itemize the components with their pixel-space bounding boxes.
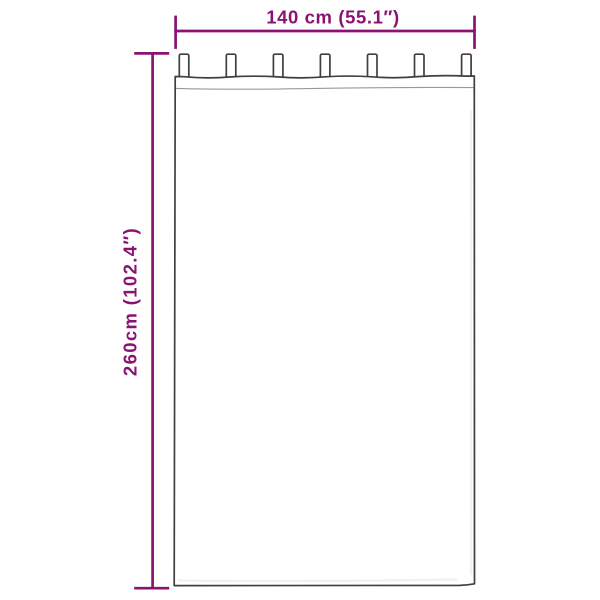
svg-text:140 cm (55.1″): 140 cm (55.1″) [266,7,399,28]
svg-text:260cm (102.4″): 260cm (102.4″) [120,227,141,376]
